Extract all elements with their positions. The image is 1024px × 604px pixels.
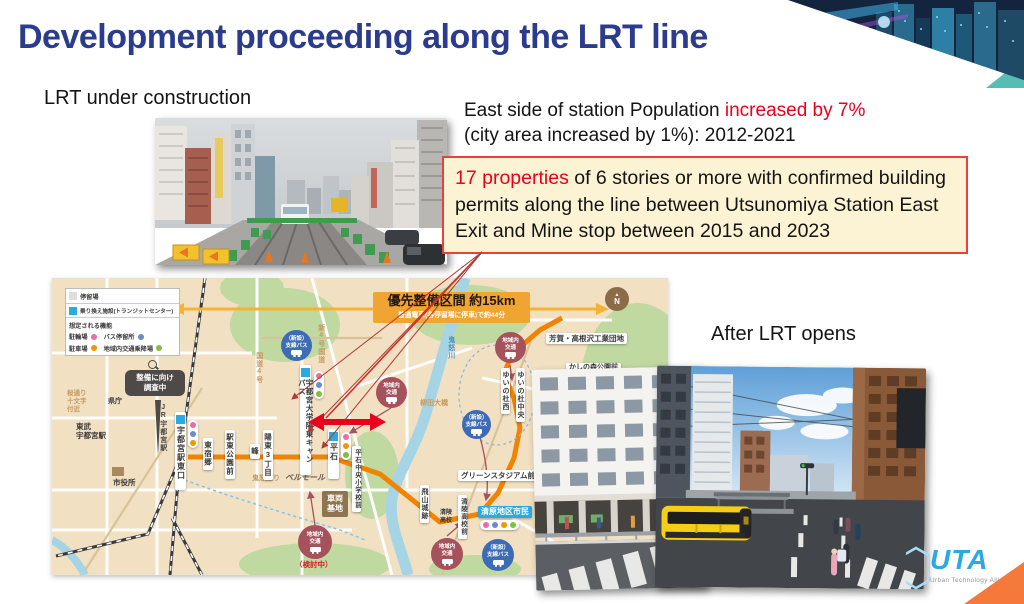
transit-square-icon [69,307,77,315]
station-yoto-3chome: 陽東3丁目 [263,430,273,480]
station-yoto-3chome-label: 陽東3丁目 [264,433,272,477]
bus-icon [310,547,321,552]
bus-icon [505,352,516,357]
station-green-stadium: グリーンスタジアム前 [458,470,538,481]
construction-section-label: LRT under construction [44,87,251,110]
banner-title: 優先整備区間 約15km [373,292,530,309]
legend-functions-label: 想定される機能 [69,321,112,330]
bicycle-dot-icon [483,522,489,528]
north-indicator: ▲ N [605,287,629,311]
depot-label: 車両 基地 [322,491,348,517]
car-dot-icon [343,443,349,449]
local-transit-badge: 地域内 交通 [431,538,463,570]
legend-carpark-label: 駐車場 [69,344,88,353]
campus-function-dots [314,371,324,399]
hexagon-icon [906,546,930,590]
station-seiryo-kokomae: 清陵高校前 [458,495,467,539]
page-title: Development proceeding along the LRT lin… [18,18,708,57]
legend-stop-row: 停留場 [66,289,179,303]
permits-highlight: 17 properties [455,167,569,189]
population-highlight: increased by 7% [725,100,865,121]
station-tobiyama-label: 飛山城跡 [421,488,428,520]
place-seiryo-koko: 清陵 高校 [440,510,452,525]
legend-row-car-local: 駐車場 地域内交通乗降場 [66,344,179,356]
station-yuinomori-chuo: ゆいの杜中央 [516,368,525,422]
lrt-tram [661,506,751,541]
place-sakuradori: 桜通り 十文字 付近 [67,390,87,414]
bus-dot-icon [316,382,322,388]
building-permits-callout: 17 properties of 6 stories or more with … [442,156,968,254]
legend-row-bicycle-bus: 駐輪場 バス停留所 [66,332,179,344]
legend-transit-row: 乗り換え施設(トランジットセンター) [66,303,179,317]
bus-icon [471,429,482,434]
local-transit-pending-badge: 地域内 交通 [298,525,332,559]
cityscape-decoration [788,0,1024,80]
place-jr-utsunomiya: JR宇都宮駅 [158,404,167,452]
branch-bus-label: （新設） 支線バス [465,415,487,428]
place-city-hall: 市役所 [113,478,136,487]
bus-icon [386,397,397,402]
street-with-tram-illustration [655,366,926,590]
local-dot-icon [343,452,349,458]
station-seiryo-kokomae-label: 清陵高校前 [459,498,466,536]
place-shin-route4: 新4号国道 [316,324,325,364]
west-exit-function-dots [188,420,198,448]
local-transit-label: 地域内 交通 [439,544,456,557]
stop-square-icon [69,292,77,300]
cityscape-illustration [788,0,1024,80]
place-kinugawa: 鬼怒川 [446,336,455,360]
station-kiyohara: 清原地区市民 [478,506,532,518]
population-text-prefix: East side of station Population [464,100,725,121]
logo-acronym: UTA [930,544,988,576]
map-legend: 停留場 乗り換え施設(トランジットセンター) 想定される機能 駐輪場 バス停留所… [65,288,180,356]
station-hiraishi-label: 平石 [330,443,338,461]
north-letter: N [614,298,620,306]
bicycle-dot-icon [316,373,322,379]
after-lrt-street-photo [655,366,926,590]
construction-street-illustration [155,118,447,265]
car-dot-icon [190,440,196,446]
local-transit-label: 地域内 交通 [307,532,324,545]
magnifier-icon [148,360,157,369]
survey-bubble: 整備に向け 調査中 [125,370,185,396]
legend-busstop-label: バス停留所 [104,332,135,341]
local-transit-badge: 地域内 交通 [495,332,526,363]
pink-dot-icon [91,334,97,340]
legend-stop-label: 停留場 [80,292,99,301]
stream [52,540,85,575]
station-hiraishi-chuo: 平石中央小学校前 [352,446,361,512]
local-dot-icon [510,522,516,528]
place-yanagida-bridge: 柳田大橋 [420,400,448,409]
hiraishi-function-dots [341,432,351,460]
green-dot-icon [156,345,162,351]
legend-local-label: 地域内交通乗降場 [104,344,154,353]
station-ekihigashi-koen: 駅東公園前 [225,430,235,479]
station-mine: 峰 [250,444,260,459]
bus-dot-icon [190,431,196,437]
station-tobiyama: 飛山城跡 [420,485,429,523]
local-transit-label: 地域内 交通 [383,383,400,396]
banner-subtitle: 普通電車(各停留場に停車)で約44分 [373,309,530,319]
slide: Development proceeding along the LRT lin… [0,0,1024,604]
car-dot-icon [501,522,507,528]
station-west-exit-label: 宇都宮駅東口 [177,426,185,480]
crane [331,198,347,212]
station-higashi-shukugo: 東宿郷 [203,438,213,470]
local-transit-label: 地域内 交通 [502,338,519,351]
bus-icon [493,560,504,565]
population-line2: (city area increased by 1%): 2012-2021 [464,125,796,146]
station-yuinomori-nishi-label: ゆいの杜西 [502,371,509,411]
place-tobu-utsunomiya: 東武 宇都宮駅 [76,422,106,441]
station-hiraishi: 平石 [328,429,339,479]
transit-center-icon [329,432,338,441]
legend-bicycle-label: 駐輪場 [69,332,88,341]
legend-transit-label: 乗り換え施設(トランジットセンター) [80,307,173,315]
pending-label: （検討中） [295,559,333,570]
orange-dot-icon [91,345,97,351]
transit-center-icon [176,415,185,424]
station-yuinomori-nishi: ゆいの杜西 [501,368,510,414]
station-higashi-shukugo-label: 東宿郷 [204,441,212,467]
bus-icon [442,559,453,564]
priority-section-banner: 優先整備区間 約15km 普通電車(各停留場に停車)で約44分 [373,292,530,323]
station-univ-campus: 宇都宮大学陽東キャンパス [300,365,311,475]
transit-center-icon [301,368,310,377]
bus-dot-icon [492,522,498,528]
construction-photo [155,118,447,265]
branch-bus-label: （新設） 支線バス [487,545,509,558]
branch-bus-badge: （新設） 支線バス [281,330,312,361]
station-mine-label: 峰 [251,447,259,456]
population-statistics-text: East side of station Population increase… [464,98,1024,149]
place-route4: 国道4号 [254,352,263,384]
branch-bus-badge: （新設） 支線バス [482,539,514,571]
station-hiraishi-chuo-label: 平石中央小学校前 [353,449,360,509]
after-section-label: After LRT opens [711,323,856,346]
branch-bus-label: （新設） 支線バス [285,336,307,349]
station-ekihigashi-koen-label: 駅東公園前 [226,433,234,476]
bicycle-dot-icon [190,422,196,428]
branch-bus-badge: （新設） 支線バス [462,410,491,439]
place-kencho: 県庁 [108,398,122,407]
kiyohara-function-dots [480,520,519,530]
station-west-exit: 宇都宮駅東口 [175,412,186,490]
blue-dot-icon [138,334,144,340]
label-haga-takanezawa: 芳賀・高根沢工業団地 [546,333,627,344]
bicycle-dot-icon [343,434,349,440]
legend-functions-title: 想定される機能 [66,317,179,332]
local-dot-icon [316,391,322,397]
bus-icon [291,350,302,355]
local-transit-badge: 地域内 交通 [376,377,407,408]
station-yuinomori-chuo-label: ゆいの杜中央 [517,371,524,419]
station-univ-campus-label: 宇都宮大学陽東キャンパス [298,379,313,472]
building-icons [112,382,137,476]
